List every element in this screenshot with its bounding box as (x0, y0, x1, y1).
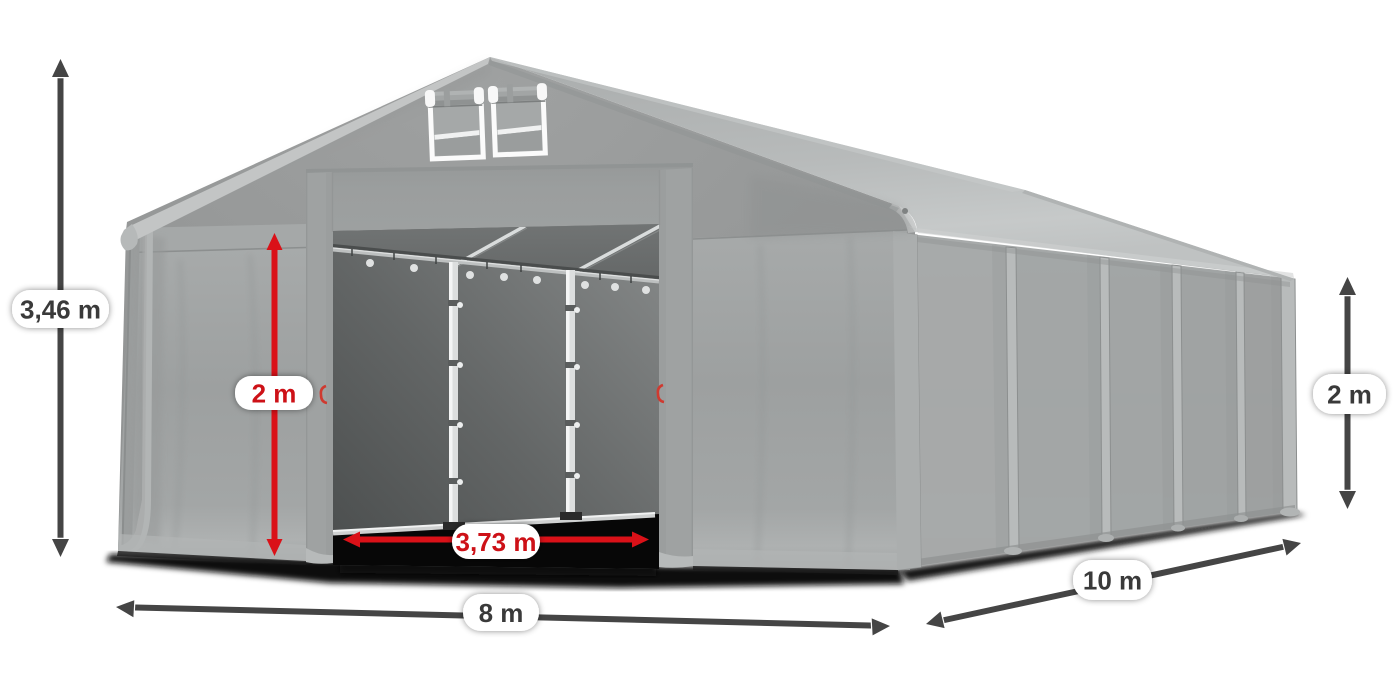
svg-text:2 m: 2 m (252, 379, 297, 409)
svg-text:3,73 m: 3,73 m (456, 527, 537, 557)
svg-text:2 m: 2 m (1327, 380, 1372, 410)
svg-text:3,46 m: 3,46 m (20, 295, 101, 325)
svg-text:8 m: 8 m (479, 598, 524, 628)
svg-text:10 m: 10 m (1083, 566, 1142, 596)
